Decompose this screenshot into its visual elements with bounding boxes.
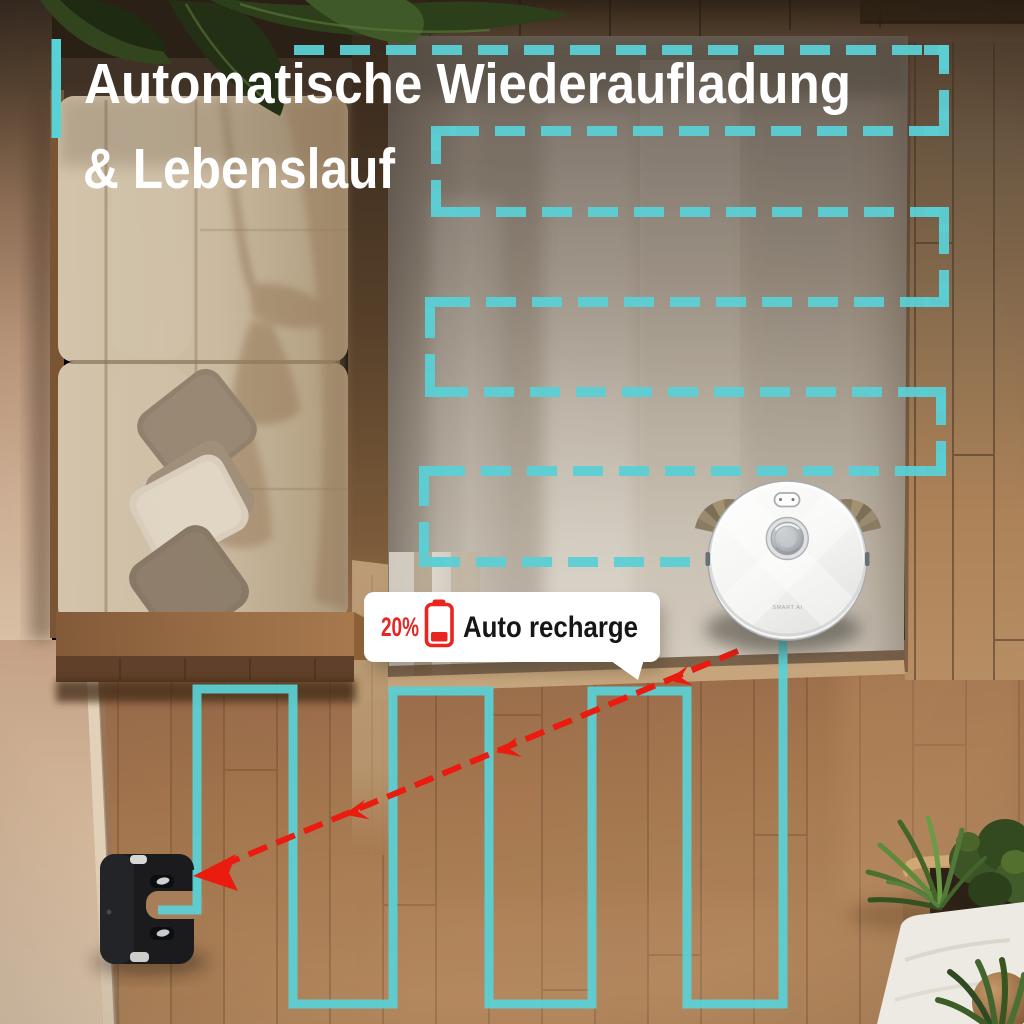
svg-text:& Lebenslauf: & Lebenslauf (83, 137, 396, 201)
svg-text:Auto recharge: Auto recharge (463, 611, 638, 644)
svg-text:Automatische Wiederaufladung: Automatische Wiederaufladung (84, 52, 851, 116)
svg-text:20%: 20% (381, 612, 419, 642)
svg-text:SMART AI: SMART AI (772, 605, 802, 611)
